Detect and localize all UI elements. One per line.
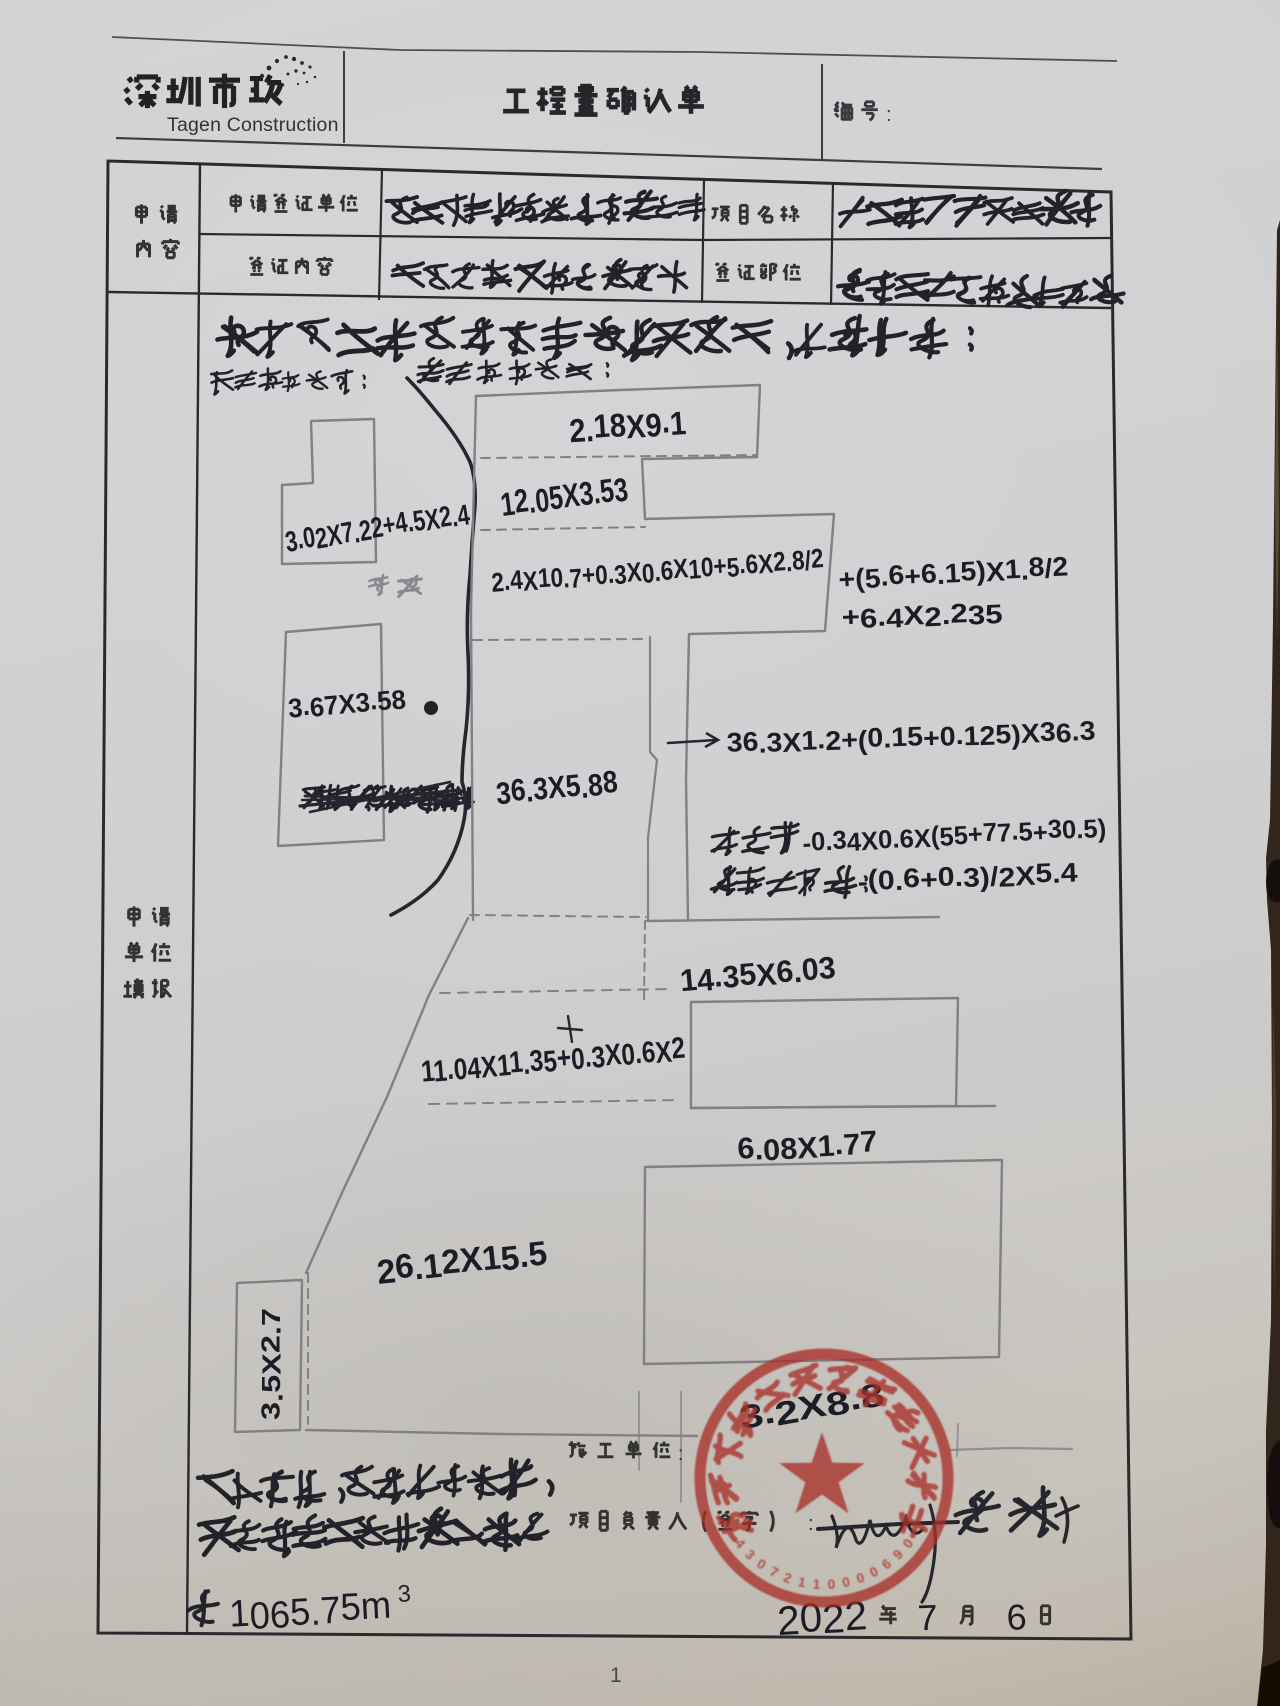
svg-text:6: 6: [1006, 1596, 1027, 1638]
svg-text:-0.34X0.6X(55+77.5+30.5): -0.34X0.6X(55+77.5+30.5): [802, 811, 1107, 860]
svg-text:+6.4X2.235: +6.4X2.235: [841, 597, 1003, 635]
svg-text:1: 1: [812, 1576, 821, 1592]
svg-text:3: 3: [742, 1547, 758, 1563]
svg-text::: :: [808, 1513, 814, 1535]
svg-text:3.5X2.7: 3.5X2.7: [256, 1308, 289, 1420]
svg-text:1065.75m: 1065.75m: [228, 1585, 392, 1640]
svg-text:26.12X15.5: 26.12X15.5: [375, 1233, 549, 1292]
svg-text:Tagen Construction: Tagen Construction: [167, 114, 339, 136]
svg-text:11.04X11.35+0.3X0.6X2: 11.04X11.35+0.3X0.6X2: [420, 1031, 687, 1090]
svg-text:+(5.6+6.15)X1.8/2: +(5.6+6.15)X1.8/2: [838, 550, 1069, 595]
svg-text:0: 0: [854, 1570, 866, 1587]
svg-text::: :: [678, 1444, 683, 1465]
svg-text:1: 1: [610, 1664, 622, 1687]
svg-text:7: 7: [767, 1564, 781, 1581]
svg-text:14.35X6.03: 14.35X6.03: [678, 948, 837, 1000]
svg-text:0: 0: [827, 1576, 836, 1591]
svg-text:-(0.6+0.3)/2X5.4: -(0.6+0.3)/2X5.4: [857, 857, 1078, 898]
svg-text:3.02X7.22+4.5X2.4: 3.02X7.22+4.5X2.4: [283, 497, 472, 561]
svg-text:2: 2: [781, 1570, 793, 1587]
svg-text:3.67X3.58: 3.67X3.58: [287, 682, 407, 724]
svg-text:0: 0: [754, 1556, 769, 1573]
svg-text:2.18X9.1: 2.18X9.1: [568, 401, 688, 449]
svg-text:36.3X1.2+(0.15+0.125)X36.3: 36.3X1.2+(0.15+0.125)X36.3: [726, 715, 1096, 761]
svg-text:12.05X3.53: 12.05X3.53: [498, 469, 630, 523]
svg-text:6: 6: [879, 1556, 894, 1573]
svg-text:9: 9: [890, 1547, 906, 1563]
svg-text:0: 0: [841, 1574, 851, 1590]
svg-text:1: 1: [797, 1574, 808, 1590]
svg-text:0: 0: [867, 1564, 881, 1581]
svg-text:2.4X10.7+0.3X0.6X10+5.6X2.8/2: 2.4X10.7+0.3X0.6X10+5.6X2.8/2: [490, 543, 825, 599]
svg-text:36.3X5.88: 36.3X5.88: [494, 764, 619, 813]
svg-text:3: 3: [397, 1580, 412, 1608]
svg-text::: :: [886, 104, 892, 126]
svg-text:7: 7: [917, 1597, 938, 1639]
